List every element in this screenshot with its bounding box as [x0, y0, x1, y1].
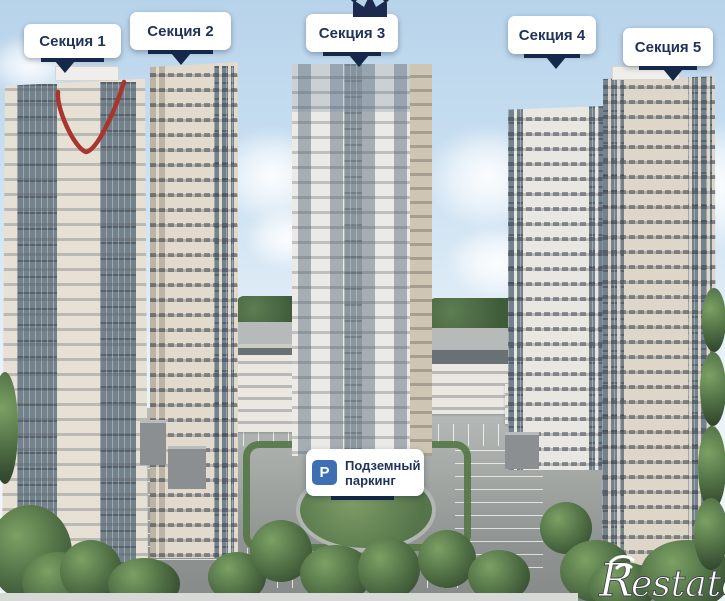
tower-section-3: [292, 64, 432, 456]
lowrise-building: [420, 362, 512, 414]
watermark-letter-r: R: [598, 553, 634, 601]
tree: [358, 538, 420, 600]
section-2-label[interactable]: Секция 2: [130, 12, 231, 50]
tower-section-5: [602, 74, 716, 570]
entrance-kiosk: [505, 432, 539, 469]
section-5-label-text: Секция 5: [635, 39, 701, 56]
bottom-strip: [0, 593, 578, 601]
building-complex-render: Секция 1 Секция 2 Секция 3 Секция 4 Секц…: [0, 0, 725, 601]
treeline: [428, 298, 520, 332]
section-1-label[interactable]: Секция 1: [24, 24, 121, 58]
tree: [700, 352, 725, 426]
crown-icon: [349, 0, 391, 18]
section-1-label-text: Секция 1: [39, 33, 105, 50]
window-rows: [508, 106, 604, 470]
parking-tooltip-text: Подземный паркинг: [345, 458, 420, 488]
parking-line-1: Подземный: [345, 458, 420, 473]
tree: [702, 288, 725, 352]
red-check-annotation: [48, 70, 136, 162]
parking-line-2: паркинг: [345, 473, 420, 488]
side-face: [410, 64, 432, 456]
parking-icon: P: [312, 460, 337, 485]
section-4-label-text: Секция 4: [519, 27, 585, 44]
section-3-label-text: Секция 3: [319, 25, 385, 42]
entrance-kiosk: [168, 446, 206, 489]
section-5-label[interactable]: Секция 5: [623, 28, 713, 66]
road: [428, 328, 520, 352]
entrance-canopy: [140, 420, 166, 465]
window-rows: [292, 64, 410, 456]
section-3-label[interactable]: Секция 3: [306, 14, 398, 52]
section-4-label[interactable]: Секция 4: [508, 16, 596, 54]
tower-section-4: [508, 106, 604, 470]
watermark-text: estate: [631, 564, 725, 601]
section-2-label-text: Секция 2: [147, 23, 213, 40]
window-rows: [602, 74, 716, 570]
restate-watermark: R estate: [597, 550, 725, 601]
underground-parking-tooltip[interactable]: P Подземный паркинг: [306, 449, 424, 496]
